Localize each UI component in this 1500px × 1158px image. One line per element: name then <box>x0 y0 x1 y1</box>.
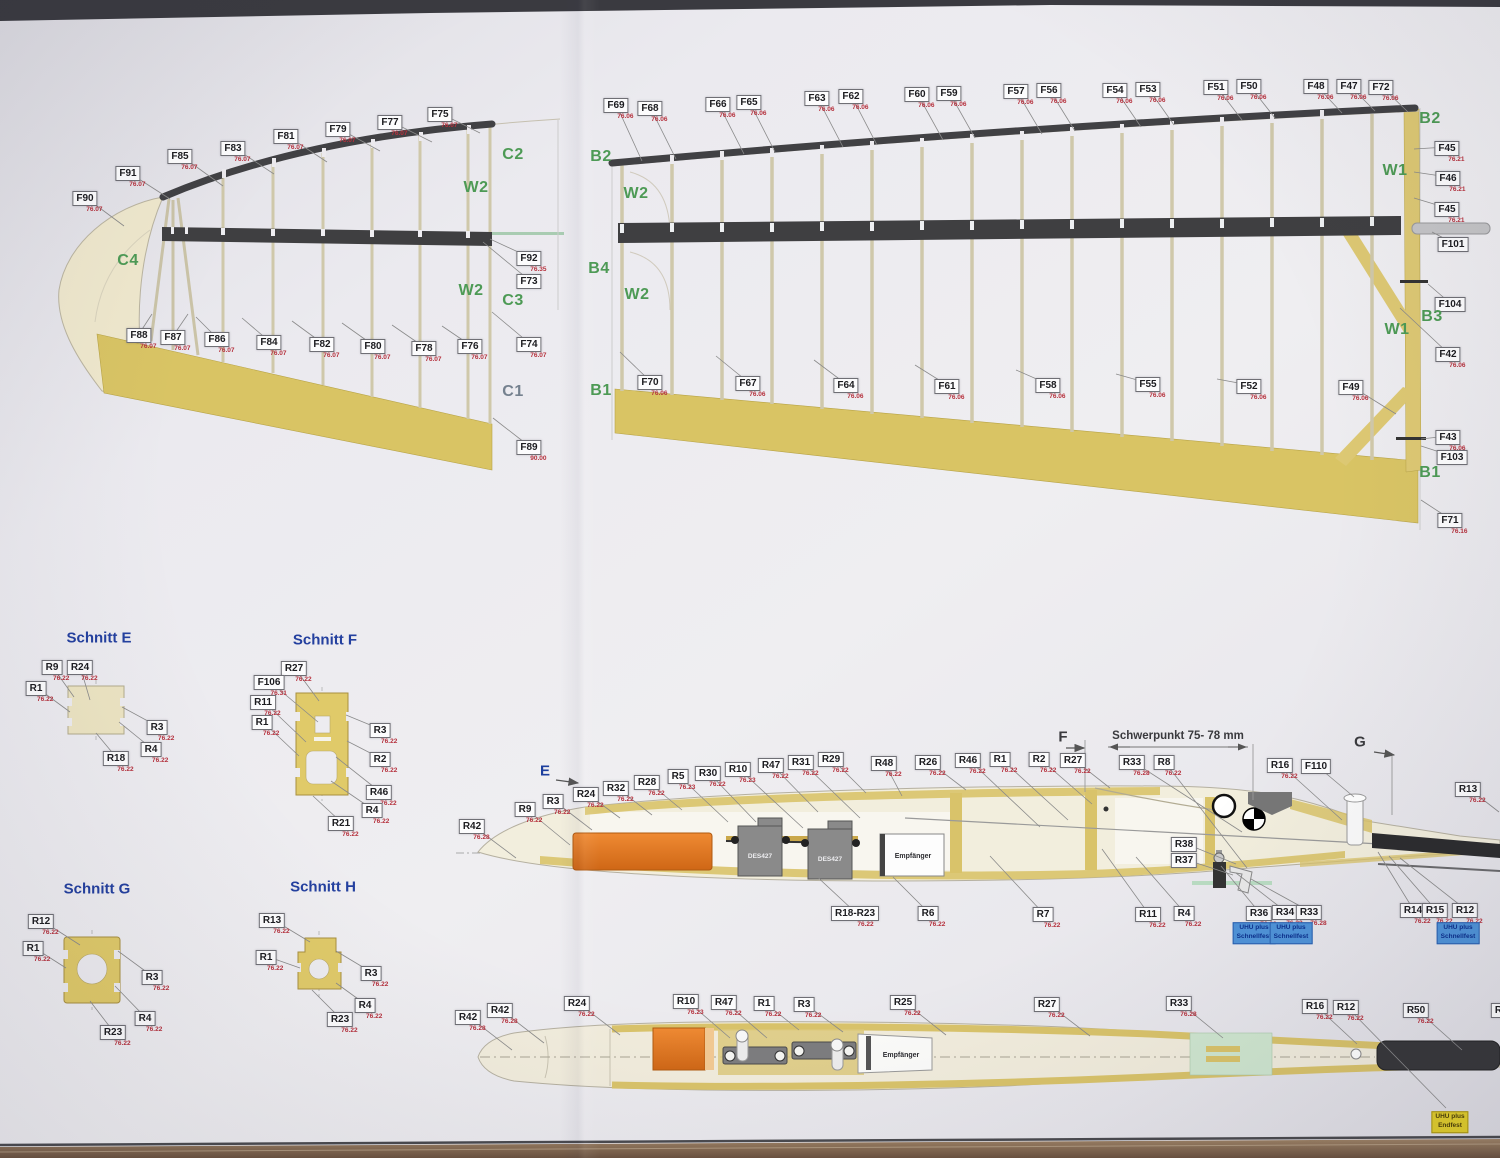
part-label-R47: R4776.22 <box>758 755 784 773</box>
part-label-R36: R3676.22 <box>1246 903 1272 921</box>
part-label-R8: R876.22 <box>1154 752 1175 770</box>
part-label-F63: F6376.06 <box>804 88 829 106</box>
part-label-R33: R3376.28 <box>1119 752 1145 770</box>
part-label-R25: R2576.22 <box>890 992 916 1010</box>
glue-note: UHU plusEndfest <box>1431 1111 1468 1133</box>
zone-letter-W1: W1 <box>1385 321 1410 339</box>
part-label-F78: F7876.07 <box>411 338 436 356</box>
part-label-F79: F7976.07 <box>325 119 350 137</box>
part-label-F66: F6676.06 <box>705 94 730 112</box>
zone-letter-B1: B1 <box>1419 464 1440 482</box>
zone-letter-B2: B2 <box>590 148 611 166</box>
part-label-F110: F110 <box>1301 756 1331 774</box>
part-label-R13: R1376.22 <box>1455 779 1481 797</box>
cg-dimension-text: Schwerpunkt 75- 78 mm <box>1112 730 1244 742</box>
part-label-F80: F8076.07 <box>360 336 385 354</box>
labels-layer: Schwerpunkt 75- 78 mm F9076.07F9176.07F8… <box>0 0 1500 1158</box>
part-label-F61: F6176.06 <box>934 376 959 394</box>
part-label-R2: R276.22 <box>370 749 391 767</box>
part-label-R24: R2476.22 <box>573 784 599 802</box>
zone-letter-B3: B3 <box>1421 308 1442 326</box>
part-label-R1: R176.22 <box>990 749 1011 767</box>
glue-note: UHU plusSchnellfest <box>1437 922 1480 944</box>
part-label-R4: R476.22 <box>141 739 162 757</box>
part-label-F75: F7576.07 <box>427 104 452 122</box>
part-label-R48: R4876.22 <box>871 753 897 771</box>
part-label-F91: F9176.07 <box>115 163 140 181</box>
part-label-R18: R1876.22 <box>103 748 129 766</box>
part-label-F89: F8990.00 <box>516 437 541 455</box>
part-label-R3: R376.22 <box>794 994 815 1012</box>
part-label-R11: R1176.22 <box>250 692 276 710</box>
part-label-F68: F6876.06 <box>637 98 662 116</box>
part-label-R26: R2676.22 <box>915 752 941 770</box>
zone-letter-W2: W2 <box>625 286 650 304</box>
part-label-F46: F4676.21 <box>1435 168 1460 186</box>
part-label-F56: F5676.06 <box>1036 80 1061 98</box>
part-label-F72: F7276.06 <box>1368 77 1393 95</box>
plan-photo: DES427 DES427 Empfänger Empfänger Schwer… <box>0 0 1500 1158</box>
part-label-F65: F6576.06 <box>736 92 761 110</box>
zone-letter-B4: B4 <box>588 260 609 278</box>
part-label-F47: F4776.06 <box>1336 76 1361 94</box>
part-label-F86: F8676.07 <box>204 329 229 347</box>
part-label-R24: R2476.22 <box>67 657 93 675</box>
section-title: Schnitt G <box>64 881 131 898</box>
part-label-F58: F5876.06 <box>1035 375 1060 393</box>
part-label-R1: R176.22 <box>252 712 273 730</box>
part-label-F67: F6776.06 <box>735 373 760 391</box>
part-label-R23: R2376.22 <box>100 1022 126 1040</box>
part-label-F74: F7476.07 <box>516 334 541 352</box>
part-label-F85: F8576.07 <box>167 146 192 164</box>
part-label-R1: R176.22 <box>23 938 44 956</box>
part-label-F60: F6076.06 <box>904 84 929 102</box>
part-label-R9: R976.22 <box>42 657 63 675</box>
section-marker-E: E <box>540 763 550 780</box>
part-label-R4: R476.22 <box>362 800 383 818</box>
part-label-R33: R3376.28 <box>1166 993 1192 1011</box>
part-label-R4: R476.22 <box>135 1008 156 1026</box>
part-label-R1: R176.22 <box>26 678 47 696</box>
part-label-R29: R2976.22 <box>818 749 844 767</box>
part-label-R34: R3476.22 <box>1272 902 1298 920</box>
part-label-R3: R376.22 <box>543 791 564 809</box>
part-label-R5: R576.23 <box>668 766 689 784</box>
part-label-R42: R4276.28 <box>455 1007 481 1025</box>
part-label-R27: R2776.22 <box>281 658 307 676</box>
part-label-F69: F6976.06 <box>603 95 628 113</box>
part-label-R42: R4276.28 <box>487 1000 513 1018</box>
part-label-F84: F8476.07 <box>256 332 281 350</box>
part-label-R12: R1276.22 <box>1333 997 1359 1015</box>
zone-letter-W2: W2 <box>464 179 489 197</box>
zone-letter-C4: C4 <box>117 252 138 270</box>
section-title: Schnitt F <box>293 632 357 649</box>
part-label-R15: R1576.22 <box>1422 900 1448 918</box>
section-marker-G: G <box>1354 734 1366 751</box>
zone-letter-C2: C2 <box>502 146 523 164</box>
glue-note: UHU plusSchnellfest <box>1270 922 1313 944</box>
part-label-R13: R1376.22 <box>1491 1000 1500 1018</box>
part-label-F76: F7676.07 <box>457 336 482 354</box>
part-label-F88: F8876.07 <box>126 325 151 343</box>
section-title: Schnitt E <box>66 630 131 647</box>
part-label-F87: F8776.07 <box>160 327 185 345</box>
part-label-F42: F4276.06 <box>1435 344 1460 362</box>
part-label-R7: R776.22 <box>1033 904 1054 922</box>
part-label-F55: F5576.06 <box>1135 374 1160 392</box>
part-label-R4: R476.22 <box>355 995 376 1013</box>
part-label-F50: F5076.06 <box>1236 76 1261 94</box>
part-label-R30: R3076.22 <box>695 763 721 781</box>
part-label-R10: R1076.23 <box>673 991 699 1009</box>
part-label-R42: R4276.28 <box>459 816 485 834</box>
part-label-F45: F4576.21 <box>1434 199 1459 217</box>
part-label-R27: R2776.22 <box>1060 750 1086 768</box>
part-label-F48: F4876.06 <box>1303 76 1328 94</box>
part-label-F62: F6276.06 <box>838 86 863 104</box>
zone-letter-W2: W2 <box>624 185 649 203</box>
part-label-F82: F8276.07 <box>309 334 334 352</box>
part-label-F77: F7776.07 <box>377 112 402 130</box>
part-label-F51: F5176.06 <box>1203 77 1228 95</box>
zone-letter-B1: B1 <box>590 382 611 400</box>
part-label-F70: F7076.06 <box>637 372 662 390</box>
part-label-F54: F5476.06 <box>1102 80 1127 98</box>
part-label-R3: R376.22 <box>361 963 382 981</box>
part-label-R12: R1276.22 <box>1452 900 1478 918</box>
zone-letter-W2: W2 <box>459 282 484 300</box>
part-label-R9: R976.22 <box>515 799 536 817</box>
part-label-R12: R1276.22 <box>28 911 54 929</box>
part-label-F53: F5376.06 <box>1135 79 1160 97</box>
part-label-F106: F10676.31 <box>254 672 285 690</box>
part-label-F57: F5776.06 <box>1003 81 1028 99</box>
part-label-R28: R2876.22 <box>634 772 660 790</box>
part-label-R11: R1176.22 <box>1135 904 1161 922</box>
part-label-F49: F4976.06 <box>1338 377 1363 395</box>
part-label-F92: F9276.35 <box>516 248 541 266</box>
section-marker-F: F <box>1058 729 1067 746</box>
part-label-R4: R476.22 <box>1174 903 1195 921</box>
part-label-F73: F73 <box>516 271 541 289</box>
part-label-R6: R676.22 <box>918 903 939 921</box>
part-label-F45: F4576.21 <box>1434 138 1459 156</box>
part-label-R10: R1076.23 <box>725 759 751 777</box>
part-label-R46: R4676.22 <box>955 750 981 768</box>
part-label-R16: R1676.22 <box>1302 996 1328 1014</box>
part-label-R21: R2176.22 <box>328 813 354 831</box>
part-label-F43: F4376.06 <box>1435 427 1460 445</box>
part-label-R24: R2476.22 <box>564 993 590 1011</box>
part-label-R46: R4676.22 <box>366 782 392 800</box>
part-label-R3: R376.22 <box>147 717 168 735</box>
part-label-R3: R376.22 <box>370 720 391 738</box>
part-label-F64: F6476.06 <box>833 375 858 393</box>
zone-letter-W1: W1 <box>1383 162 1408 180</box>
part-label-R33: R3376.28 <box>1296 902 1322 920</box>
zone-letter-C3: C3 <box>502 292 523 310</box>
part-label-R50: R5076.22 <box>1403 1000 1429 1018</box>
part-label-R47: R4776.22 <box>711 992 737 1010</box>
part-label-F83: F8376.07 <box>220 138 245 156</box>
part-label-R13: R1376.22 <box>259 910 285 928</box>
zone-letter-C1: C1 <box>502 383 523 401</box>
part-label-F103: F103 <box>1437 447 1468 465</box>
part-label-F81: F8176.07 <box>273 126 298 144</box>
part-label-R3: R376.22 <box>142 967 163 985</box>
zone-letter-B2: B2 <box>1419 110 1440 128</box>
part-label-R16: R1676.22 <box>1267 755 1293 773</box>
part-label-F71: F7176.16 <box>1437 510 1462 528</box>
part-label-R1: R176.22 <box>256 947 277 965</box>
part-label-R2: R276.22 <box>1029 749 1050 767</box>
part-label-R23: R2376.22 <box>327 1009 353 1027</box>
section-title: Schnitt H <box>290 879 356 896</box>
part-label-R27: R2776.22 <box>1034 994 1060 1012</box>
part-label-R32: R3276.22 <box>603 778 629 796</box>
part-label-F90: F9076.07 <box>72 188 97 206</box>
part-label-F59: F5976.06 <box>936 83 961 101</box>
part-label-R1: R176.22 <box>754 993 775 1011</box>
part-label-R37: R37 <box>1171 850 1197 868</box>
part-label-R18-R23: R18-R2376.22 <box>831 903 879 921</box>
part-label-R31: R3176.22 <box>788 752 814 770</box>
part-label-F52: F5276.06 <box>1236 376 1261 394</box>
part-label-F101: F101 <box>1438 234 1469 252</box>
